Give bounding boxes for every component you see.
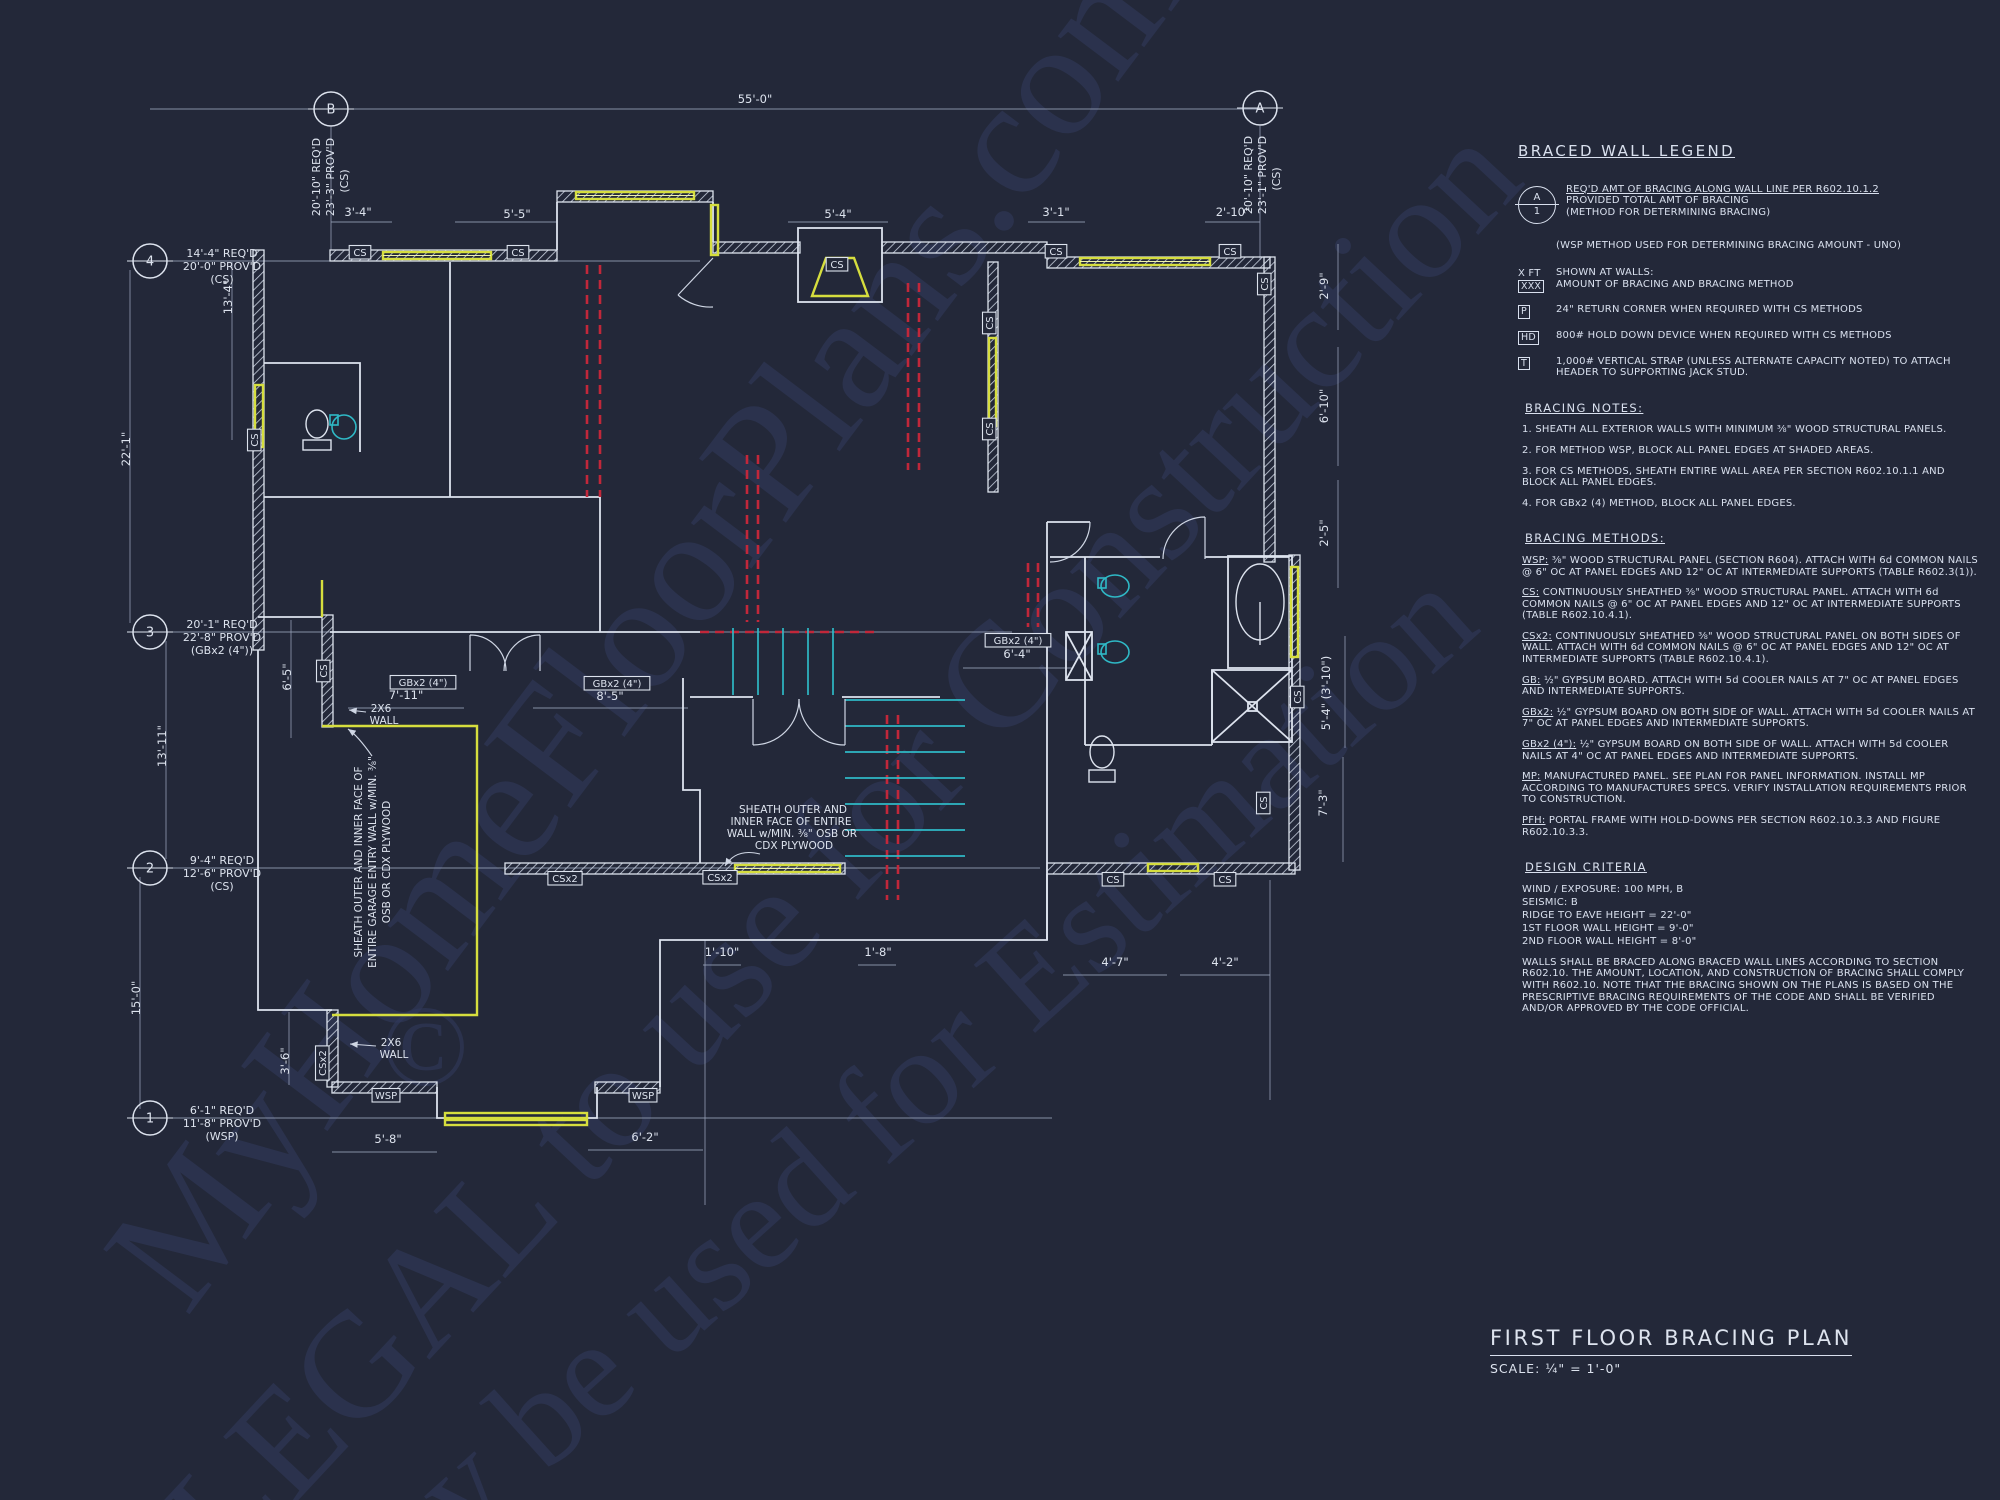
legend-item-text: SHOWN AT WALLS:AMOUNT OF BRACING AND BRA… bbox=[1556, 267, 1794, 293]
plan-annotation: ENTIRE GARAGE ENTRY WALL w/MIN. ⅜" bbox=[367, 756, 379, 968]
svg-text:22'-8" PROV'D: 22'-8" PROV'D bbox=[183, 631, 261, 644]
plan-annotation: INNER FACE OF ENTIRE bbox=[730, 816, 851, 828]
svg-text:3: 3 bbox=[146, 626, 154, 641]
plan-annotation: 6'-1" REQ'D bbox=[190, 1104, 254, 1117]
plan-annotation: 13'-11" bbox=[155, 725, 169, 767]
method-tag: GBx2 (4") bbox=[390, 676, 456, 690]
svg-text:20'-10" REQ'D: 20'-10" REQ'D bbox=[1242, 136, 1255, 214]
plan-annotation: 1'-8" bbox=[864, 945, 891, 959]
svg-text:11'-8" PROV'D: 11'-8" PROV'D bbox=[183, 1117, 261, 1130]
svg-text:6'-10": 6'-10" bbox=[1317, 389, 1331, 424]
svg-text:6'-5": 6'-5" bbox=[280, 663, 294, 690]
plan-annotation: 22'-8" PROV'D bbox=[183, 631, 261, 644]
legend-title: BRACED WALL LEGEND bbox=[1518, 146, 1981, 158]
plan-annotation: (GBx2 (4")) bbox=[191, 644, 253, 657]
sheet-title: FIRST FLOOR BRACING PLAN bbox=[1490, 1326, 1852, 1356]
svg-text:CS: CS bbox=[353, 248, 366, 259]
plan-annotation: 7'-3" bbox=[1316, 789, 1330, 816]
bracing-method: CSx2: CONTINUOUSLY SHEATHED ⅜" WOOD STRU… bbox=[1522, 631, 1981, 666]
wall-line-symbol-row: A 1 REQ'D AMT OF BRACING ALONG WALL LINE… bbox=[1518, 184, 1981, 224]
svg-text:5'-5": 5'-5" bbox=[503, 207, 530, 221]
plan-annotation: 55'-0" bbox=[738, 92, 773, 106]
svg-text:6'-2": 6'-2" bbox=[631, 1130, 658, 1144]
svg-text:CS: CS bbox=[1218, 875, 1231, 886]
svg-text:3'-4": 3'-4" bbox=[344, 205, 371, 219]
bracing-note: 1. SHEATH ALL EXTERIOR WALLS WITH MINIMU… bbox=[1522, 424, 1981, 436]
bubble-top-label: A bbox=[1533, 192, 1540, 204]
svg-text:22'-1": 22'-1" bbox=[119, 432, 133, 467]
method-tag: GBx2 (4") bbox=[985, 634, 1051, 648]
bubble-bottom-label: 1 bbox=[1534, 206, 1541, 218]
criteria-line: RIDGE TO EAVE HEIGHT = 22'-0" bbox=[1522, 910, 1981, 922]
method-tag: CS bbox=[349, 246, 371, 260]
svg-text:4: 4 bbox=[146, 255, 154, 270]
svg-text:2: 2 bbox=[146, 862, 154, 877]
plan-annotation: SHEATH OUTER AND bbox=[739, 804, 847, 816]
plan-annotation: WALL w/MIN. ⅜" OSB OR bbox=[727, 828, 857, 840]
svg-text:20'-0" PROV'D: 20'-0" PROV'D bbox=[183, 260, 261, 273]
svg-text:CDX PLYWOOD: CDX PLYWOOD bbox=[755, 840, 833, 852]
plan-annotation: 13'-4" bbox=[221, 280, 235, 315]
method-tag: CS bbox=[1291, 686, 1305, 708]
bracing-method: GB: ½" GYPSUM BOARD. ATTACH WITH 5d COOL… bbox=[1522, 675, 1981, 698]
svg-text:6'-4": 6'-4" bbox=[1003, 647, 1030, 661]
plan-annotation: SHEATH OUTER AND INNER FACE OF bbox=[353, 766, 365, 957]
bracing-notes-list: 1. SHEATH ALL EXTERIOR WALLS WITH MINIMU… bbox=[1522, 424, 1981, 509]
svg-text:GBx2 (4"): GBx2 (4") bbox=[994, 636, 1043, 647]
plan-annotation: 2X6 bbox=[371, 703, 392, 715]
svg-text:23'-3" PROV'D: 23'-3" PROV'D bbox=[324, 138, 337, 216]
plan-annotation: 2'-5" bbox=[1317, 519, 1331, 546]
svg-text:B: B bbox=[327, 103, 336, 118]
plan-annotation: 3'-1" bbox=[1042, 205, 1069, 219]
title-block: FIRST FLOOR BRACING PLAN SCALE: ¼" = 1'-… bbox=[1490, 1326, 1852, 1376]
wall-line-bubble-icon: A 1 bbox=[1518, 186, 1556, 224]
legend-item-symbol: HD bbox=[1518, 330, 1556, 345]
wsp-method-note: (WSP METHOD USED FOR DETERMINING BRACING… bbox=[1556, 240, 1981, 252]
method-tag: CS bbox=[507, 246, 529, 260]
svg-text:6'-1" REQ'D: 6'-1" REQ'D bbox=[190, 1104, 254, 1117]
plan-annotation: 11'-8" PROV'D bbox=[183, 1117, 261, 1130]
bubble-line-2: PROVIDED TOTAL AMT OF BRACING bbox=[1566, 195, 1879, 207]
svg-text:1: 1 bbox=[146, 1112, 154, 1127]
plan-annotation: (CS) bbox=[210, 880, 233, 893]
bracing-method: CS: CONTINUOUSLY SHEATHED ⅜" WOOD STRUCT… bbox=[1522, 587, 1981, 622]
bracing-notes-title: BRACING NOTES: bbox=[1525, 403, 1981, 415]
svg-text:OSB OR CDX PLYWOOD: OSB OR CDX PLYWOOD bbox=[381, 801, 393, 924]
plan-annotation: 6'-2" bbox=[631, 1130, 658, 1144]
svg-text:SHEATH OUTER AND INNER FACE OF: SHEATH OUTER AND INNER FACE OF bbox=[353, 766, 365, 957]
svg-text:CS: CS bbox=[319, 664, 330, 677]
bracing-methods-title: BRACING METHODS: bbox=[1525, 533, 1981, 545]
svg-text:(CS): (CS) bbox=[338, 169, 351, 192]
method-tag: GBx2 (4") bbox=[584, 677, 650, 691]
svg-text:1'-8": 1'-8" bbox=[864, 945, 891, 959]
svg-text:2'-5": 2'-5" bbox=[1317, 519, 1331, 546]
svg-text:4'-2": 4'-2" bbox=[1211, 955, 1238, 969]
svg-text:CS: CS bbox=[830, 260, 843, 271]
bubble-divider bbox=[1515, 204, 1559, 205]
design-criteria-title: DESIGN CRITERIA bbox=[1525, 862, 1981, 874]
svg-text:13'-11": 13'-11" bbox=[155, 725, 169, 767]
bracing-note: 3. FOR CS METHODS, SHEATH ENTIRE WALL AR… bbox=[1522, 466, 1981, 489]
plan-annotation: 5'-4" bbox=[824, 207, 851, 221]
bracing-note: 2. FOR METHOD WSP, BLOCK ALL PANEL EDGES… bbox=[1522, 445, 1981, 457]
svg-text:(CS): (CS) bbox=[1270, 167, 1283, 190]
svg-text:9'-4" REQ'D: 9'-4" REQ'D bbox=[190, 854, 254, 867]
bracing-note: 4. FOR GBx2 (4) METHOD, BLOCK ALL PANEL … bbox=[1522, 498, 1981, 510]
method-tag: CS bbox=[826, 258, 848, 272]
svg-text:4'-7": 4'-7" bbox=[1101, 955, 1128, 969]
plan-annotation: (CS) bbox=[338, 169, 351, 192]
plan-annotation: 20'-10" REQ'D bbox=[1242, 136, 1255, 214]
method-tag: CSx2 bbox=[316, 1046, 330, 1080]
bracing-method: GBx2: ½" GYPSUM BOARD ON BOTH SIDE OF WA… bbox=[1522, 707, 1981, 730]
criteria-line: 2ND FLOOR WALL HEIGHT = 8'-0" bbox=[1522, 936, 1981, 948]
plan-annotation: 22'-1" bbox=[119, 432, 133, 467]
plan-annotation: 4'-2" bbox=[1211, 955, 1238, 969]
svg-text:3'-1": 3'-1" bbox=[1042, 205, 1069, 219]
method-tag: CS bbox=[983, 418, 997, 440]
method-tag: CS bbox=[983, 312, 997, 334]
legend-item-text: 1,000# VERTICAL STRAP (UNLESS ALTERNATE … bbox=[1556, 356, 1951, 379]
method-tag: CS bbox=[248, 429, 262, 451]
legend-item-symbol: X FTXXX bbox=[1518, 267, 1556, 293]
plan-annotation: 23'-3" PROV'D bbox=[324, 138, 337, 216]
bubble-description: REQ'D AMT OF BRACING ALONG WALL LINE PER… bbox=[1566, 184, 1879, 224]
plan-annotation: (CS) bbox=[1270, 167, 1283, 190]
svg-text:CS: CS bbox=[985, 316, 996, 329]
svg-text:3'-6": 3'-6" bbox=[278, 1047, 292, 1074]
plan-annotation: 3'-6" bbox=[278, 1047, 292, 1074]
sheet-scale: SCALE: ¼" = 1'-0" bbox=[1490, 1361, 1852, 1376]
criteria-line: 1ST FLOOR WALL HEIGHT = 9'-0" bbox=[1522, 923, 1981, 935]
method-tag: CS bbox=[1102, 873, 1124, 887]
legend-item-symbol: P bbox=[1518, 304, 1556, 319]
svg-text:(GBx2 (4")): (GBx2 (4")) bbox=[191, 644, 253, 657]
plan-annotation: 12'-6" PROV'D bbox=[183, 867, 261, 880]
method-tag: CS bbox=[317, 660, 331, 682]
svg-text:13'-4": 13'-4" bbox=[221, 280, 235, 315]
legend-item: T1,000# VERTICAL STRAP (UNLESS ALTERNATE… bbox=[1518, 356, 1981, 379]
svg-text:12'-6" PROV'D: 12'-6" PROV'D bbox=[183, 867, 261, 880]
watermark-layer: MyHomeFloorPlans.comILLEGAL to use for C… bbox=[36, 0, 1551, 1500]
svg-text:7'-3": 7'-3" bbox=[1316, 789, 1330, 816]
legend-item: X FTXXXSHOWN AT WALLS:AMOUNT OF BRACING … bbox=[1518, 267, 1981, 293]
legend-item: HD800# HOLD DOWN DEVICE WHEN REQUIRED WI… bbox=[1518, 330, 1981, 345]
svg-text:(CS): (CS) bbox=[210, 880, 233, 893]
legend-items: X FTXXXSHOWN AT WALLS:AMOUNT OF BRACING … bbox=[1503, 267, 1981, 379]
bracing-method: PFH: PORTAL FRAME WITH HOLD-DOWNS PER SE… bbox=[1522, 815, 1981, 838]
svg-text:CSx2: CSx2 bbox=[318, 1050, 329, 1076]
legend-item-text: 24" RETURN CORNER WHEN REQUIRED WITH CS … bbox=[1556, 304, 1863, 319]
toilet bbox=[1090, 736, 1114, 768]
svg-text:WALL w/MIN. ⅜" OSB OR: WALL w/MIN. ⅜" OSB OR bbox=[727, 828, 857, 840]
svg-text:SHEATH OUTER AND: SHEATH OUTER AND bbox=[739, 804, 847, 816]
plan-annotation: 20'-0" PROV'D bbox=[183, 260, 261, 273]
plan-annotation: WALL bbox=[380, 1049, 409, 1061]
method-tag: CS bbox=[1214, 873, 1236, 887]
method-tag: WSP bbox=[629, 1089, 657, 1103]
svg-text:CSx2: CSx2 bbox=[552, 874, 578, 885]
svg-text:CSx2: CSx2 bbox=[707, 873, 733, 884]
plan-annotation: 4'-7" bbox=[1101, 955, 1128, 969]
svg-text:CS: CS bbox=[1259, 796, 1270, 809]
svg-text:5'-8": 5'-8" bbox=[374, 1132, 401, 1146]
criteria-line: WIND / EXPOSURE: 100 MPH, B bbox=[1522, 884, 1981, 896]
plan-annotation: 7'-11" bbox=[389, 688, 424, 702]
bracing-method: WSP: ⅜" WOOD STRUCTURAL PANEL (SECTION R… bbox=[1522, 555, 1981, 578]
plan-annotation: 5'-4" (3'-10") bbox=[1319, 656, 1333, 730]
plan-annotation: WALL bbox=[370, 715, 399, 727]
svg-text:1'-10": 1'-10" bbox=[705, 945, 740, 959]
plan-annotation: 15'-0" bbox=[129, 981, 143, 1016]
svg-text:CS: CS bbox=[985, 422, 996, 435]
grid-bubble-4: 4 bbox=[127, 244, 173, 278]
plan-annotation: 6'-4" bbox=[1003, 647, 1030, 661]
plan-annotation: 3'-4" bbox=[344, 205, 371, 219]
svg-text:GBx2 (4"): GBx2 (4") bbox=[593, 679, 642, 690]
svg-text:7'-11": 7'-11" bbox=[389, 688, 424, 702]
svg-text:55'-0": 55'-0" bbox=[738, 92, 773, 106]
svg-text:CS: CS bbox=[511, 248, 524, 259]
bracing-method: MP: MANUFACTURED PANEL. SEE PLAN FOR PAN… bbox=[1522, 771, 1981, 806]
svg-text:5'-4" (3'-10"): 5'-4" (3'-10") bbox=[1319, 656, 1333, 730]
bracing-methods-list: WSP: ⅜" WOOD STRUCTURAL PANEL (SECTION R… bbox=[1522, 555, 1981, 838]
method-tag: CS bbox=[1258, 273, 1272, 295]
svg-text:A: A bbox=[1256, 102, 1265, 117]
svg-text:CS: CS bbox=[1260, 277, 1271, 290]
svg-text:ENTIRE GARAGE ENTRY WALL w/MIN: ENTIRE GARAGE ENTRY WALL w/MIN. ⅜" bbox=[367, 756, 379, 968]
legend-item: P24" RETURN CORNER WHEN REQUIRED WITH CS… bbox=[1518, 304, 1981, 319]
svg-text:5'-4": 5'-4" bbox=[824, 207, 851, 221]
svg-text:CS: CS bbox=[1049, 247, 1062, 258]
sink bbox=[332, 415, 356, 439]
svg-text:CS: CS bbox=[1106, 875, 1119, 886]
blueprint-sheet: { "colors": { "background": "#232839", "… bbox=[0, 0, 2000, 1500]
svg-text:2X6: 2X6 bbox=[381, 1037, 402, 1049]
plan-annotation: 8'-5" bbox=[596, 689, 623, 703]
bracing-method: GBx2 (4"): ½" GYPSUM BOARD ON BOTH SIDE … bbox=[1522, 739, 1981, 762]
plan-annotation: 5'-8" bbox=[374, 1132, 401, 1146]
method-tag: CS bbox=[1219, 245, 1241, 259]
svg-text:WSP: WSP bbox=[375, 1091, 397, 1102]
method-tag: CS bbox=[1045, 245, 1067, 259]
svg-text:23'-1" PROV'D: 23'-1" PROV'D bbox=[1256, 136, 1269, 214]
svg-text:2'-9": 2'-9" bbox=[1317, 272, 1331, 299]
plan-annotation: 9'-4" REQ'D bbox=[190, 854, 254, 867]
svg-text:WALL: WALL bbox=[380, 1049, 409, 1061]
svg-text:GBx2 (4"): GBx2 (4") bbox=[399, 678, 448, 689]
plan-annotation: 14'-4" REQ'D bbox=[186, 247, 257, 260]
plan-annotation: 6'-5" bbox=[280, 663, 294, 690]
plan-annotation: CDX PLYWOOD bbox=[755, 840, 833, 852]
plan-annotation: 2X6 bbox=[381, 1037, 402, 1049]
bracing-compliance-paragraph: WALLS SHALL BE BRACED ALONG BRACED WALL … bbox=[1522, 957, 1967, 1015]
plan-annotation: OSB OR CDX PLYWOOD bbox=[381, 801, 393, 924]
toilet bbox=[306, 410, 328, 438]
legend-panel: BRACED WALL LEGEND A 1 REQ'D AMT OF BRAC… bbox=[1503, 146, 1981, 1024]
plan-annotation: 23'-1" PROV'D bbox=[1256, 136, 1269, 214]
method-tag: CS bbox=[1257, 792, 1271, 814]
svg-text:2X6: 2X6 bbox=[371, 703, 392, 715]
method-tag: CSx2 bbox=[703, 871, 737, 885]
plan-annotation: 5'-5" bbox=[503, 207, 530, 221]
svg-text:INNER FACE OF ENTIRE: INNER FACE OF ENTIRE bbox=[730, 816, 851, 828]
svg-text:15'-0": 15'-0" bbox=[129, 981, 143, 1016]
svg-text:8'-5": 8'-5" bbox=[596, 689, 623, 703]
svg-text:(WSP): (WSP) bbox=[205, 1130, 238, 1143]
plan-annotation: 2'-9" bbox=[1317, 272, 1331, 299]
legend-item-symbol: T bbox=[1518, 356, 1556, 379]
svg-text:WALL: WALL bbox=[370, 715, 399, 727]
plan-annotation: 20'-1" REQ'D bbox=[186, 618, 257, 631]
legend-item-text: 800# HOLD DOWN DEVICE WHEN REQUIRED WITH… bbox=[1556, 330, 1892, 345]
method-tag: CSx2 bbox=[548, 872, 582, 886]
svg-text:20'-10" REQ'D: 20'-10" REQ'D bbox=[310, 138, 323, 216]
plan-annotation: 20'-10" REQ'D bbox=[310, 138, 323, 216]
grid-bubble-A: A bbox=[1237, 91, 1283, 125]
plan-annotation: 6'-10" bbox=[1317, 389, 1331, 424]
svg-text:CS: CS bbox=[1293, 690, 1304, 703]
grid-bubble-B: B bbox=[308, 92, 354, 126]
method-tag: WSP bbox=[372, 1089, 400, 1103]
svg-text:20'-1" REQ'D: 20'-1" REQ'D bbox=[186, 618, 257, 631]
svg-text:14'-4" REQ'D: 14'-4" REQ'D bbox=[186, 247, 257, 260]
design-criteria-lines: WIND / EXPOSURE: 100 MPH, BSEISMIC: BRID… bbox=[1522, 884, 1981, 948]
svg-text:CS: CS bbox=[1223, 247, 1236, 258]
plan-annotation: (WSP) bbox=[205, 1130, 238, 1143]
plan-annotation: 1'-10" bbox=[705, 945, 740, 959]
svg-text:CS: CS bbox=[250, 433, 261, 446]
criteria-line: SEISMIC: B bbox=[1522, 897, 1981, 909]
bubble-line-3: (METHOD FOR DETERMINING BRACING) bbox=[1566, 207, 1879, 219]
bubble-line-1: REQ'D AMT OF BRACING ALONG WALL LINE PER… bbox=[1566, 184, 1879, 196]
svg-text:WSP: WSP bbox=[632, 1091, 654, 1102]
